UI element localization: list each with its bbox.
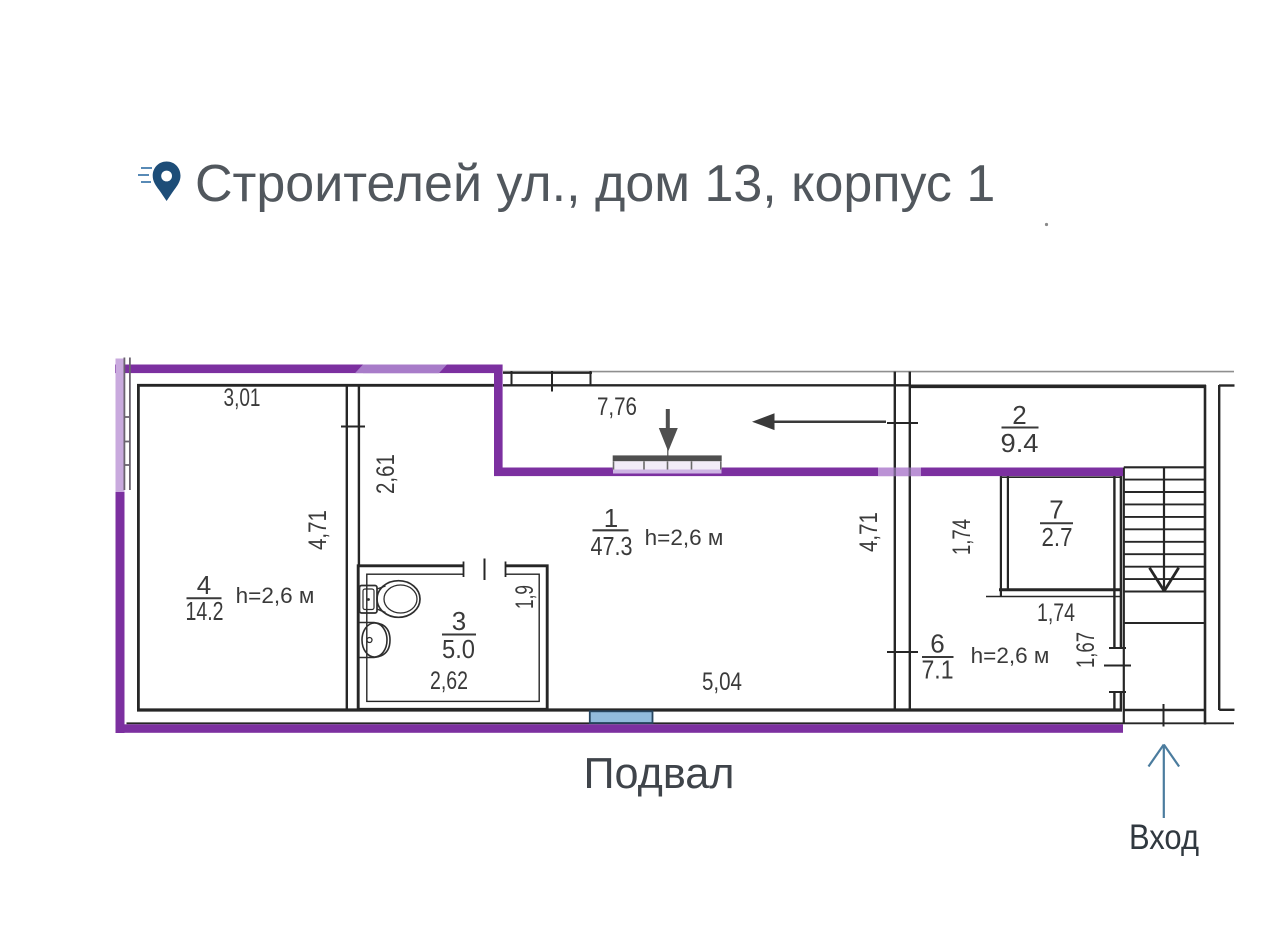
svg-text:2.7: 2.7 xyxy=(1042,522,1073,552)
svg-text:1,74: 1,74 xyxy=(948,519,976,555)
svg-text:4,71: 4,71 xyxy=(304,510,332,550)
svg-text:h=2,6 м: h=2,6 м xyxy=(971,643,1050,668)
svg-text:1: 1 xyxy=(604,503,618,533)
svg-text:7: 7 xyxy=(1049,495,1063,525)
svg-text:2,62: 2,62 xyxy=(430,667,468,695)
svg-text:7,76: 7,76 xyxy=(597,393,637,421)
svg-text:1,74: 1,74 xyxy=(1037,599,1075,627)
svg-text:7.1: 7.1 xyxy=(922,655,954,685)
svg-text:h=2,6 м: h=2,6 м xyxy=(236,583,315,608)
svg-text:3: 3 xyxy=(452,606,466,636)
svg-text:Строителей ул., дом 13, корпус: Строителей ул., дом 13, корпус 1 xyxy=(195,155,995,213)
svg-text:5,04: 5,04 xyxy=(702,668,742,696)
svg-text:h=2,6 м: h=2,6 м xyxy=(645,525,724,550)
svg-text:1,67: 1,67 xyxy=(1072,632,1100,668)
svg-text:2,61: 2,61 xyxy=(372,454,400,494)
svg-text:9.4: 9.4 xyxy=(1001,428,1039,458)
svg-text:2: 2 xyxy=(1012,400,1026,430)
svg-text:Вход: Вход xyxy=(1129,818,1199,857)
svg-text:Подвал: Подвал xyxy=(584,749,735,798)
svg-text:47.3: 47.3 xyxy=(591,531,633,561)
svg-text:5.0: 5.0 xyxy=(442,634,475,664)
svg-text:1,9: 1,9 xyxy=(511,585,539,609)
svg-text:3,01: 3,01 xyxy=(224,384,261,412)
svg-text:4,71: 4,71 xyxy=(855,512,883,552)
svg-text:14.2: 14.2 xyxy=(186,596,224,626)
